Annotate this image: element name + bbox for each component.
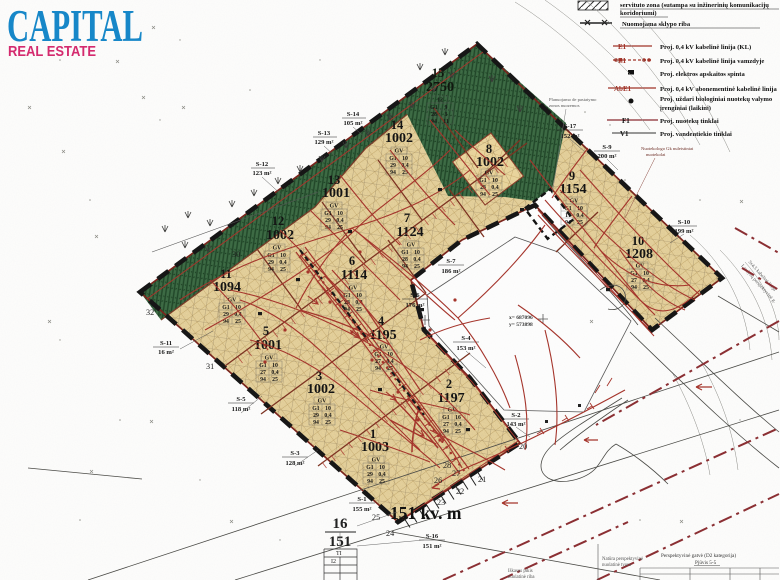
- svg-text:29: 29: [325, 218, 331, 224]
- svg-text:25: 25: [325, 420, 331, 426]
- svg-text:15: 15: [432, 66, 445, 80]
- svg-text:16: 16: [333, 516, 349, 532]
- svg-text:nuolatinė riba: nuolatinė riba: [508, 575, 535, 580]
- svg-text:1001: 1001: [322, 186, 350, 201]
- svg-text:10: 10: [337, 211, 343, 217]
- svg-text:S-4: S-4: [461, 335, 471, 342]
- svg-text:22: 22: [456, 487, 464, 496]
- svg-text:0,4: 0,4: [324, 413, 331, 419]
- svg-text:1154: 1154: [559, 182, 586, 197]
- svg-text:27: 27: [443, 422, 449, 428]
- svg-text:S-14: S-14: [347, 111, 360, 118]
- svg-text:5: 5: [263, 324, 269, 338]
- svg-text:27: 27: [452, 469, 460, 478]
- svg-text:16: 16: [455, 415, 461, 421]
- svg-text:10: 10: [492, 178, 498, 184]
- svg-text:S-10: S-10: [678, 219, 691, 226]
- svg-text:25: 25: [272, 377, 278, 383]
- svg-text:27: 27: [375, 359, 381, 365]
- svg-text:151 kv. m: 151 kv. m: [390, 503, 462, 523]
- svg-text:27: 27: [631, 278, 637, 284]
- svg-text:Natūra perspektyvinė: Natūra perspektyvinė: [602, 557, 643, 562]
- svg-text:176 m²: 176 m²: [405, 302, 424, 309]
- svg-text:S-2: S-2: [511, 412, 521, 419]
- svg-text:G1: G1: [324, 211, 332, 217]
- svg-text:31: 31: [206, 362, 214, 371]
- svg-text:10: 10: [272, 363, 278, 369]
- svg-text:0,4: 0,4: [491, 185, 498, 191]
- svg-text:Proj. vandentiekio tinklai: Proj. vandentiekio tinklai: [660, 131, 732, 138]
- svg-text:0,4: 0,4: [413, 257, 420, 263]
- svg-text:GV: GV: [265, 356, 275, 362]
- svg-text:8: 8: [486, 142, 492, 156]
- svg-text:Proj. 0,4 kV abonementinė kabe: Proj. 0,4 kV abonementinė kabelinė linij…: [660, 86, 778, 93]
- svg-text:143 m²: 143 m²: [506, 421, 525, 428]
- svg-text:7: 7: [404, 211, 410, 225]
- svg-text:20: 20: [519, 442, 527, 451]
- svg-text:94: 94: [260, 377, 266, 383]
- svg-text:nuotekolai: nuotekolai: [646, 152, 666, 157]
- svg-text:GV: GV: [395, 149, 405, 155]
- svg-text:17: 17: [565, 213, 571, 219]
- svg-text:zonos nuozemos: zonos nuozemos: [549, 103, 580, 108]
- svg-text:0,4: 0,4: [271, 370, 278, 376]
- svg-text:Pjūvis 5-5: Pjūvis 5-5: [695, 560, 717, 566]
- svg-text:11: 11: [443, 119, 449, 125]
- svg-text:2750: 2750: [426, 80, 454, 95]
- svg-text:V1: V1: [620, 130, 629, 138]
- svg-text:94: 94: [268, 267, 274, 273]
- svg-text:94: 94: [367, 479, 373, 485]
- svg-text:Perspektyvinė gatvė (D2 katego: Perspektyvinė gatvė (D2 kategorija): [661, 552, 736, 559]
- svg-text:GV: GV: [407, 243, 417, 249]
- svg-text:1002: 1002: [385, 131, 413, 146]
- svg-text:94: 94: [375, 366, 381, 372]
- svg-text:10: 10: [643, 271, 649, 277]
- svg-text:29: 29: [367, 472, 373, 478]
- svg-text:199 m²: 199 m²: [674, 228, 693, 235]
- svg-text:25: 25: [643, 285, 649, 291]
- svg-text:Proj. uždari biologiniai nuote: Proj. uždari biologiniai nuotekų valymo: [660, 96, 773, 103]
- svg-text:0,4: 0,4: [279, 260, 286, 266]
- svg-text:152 m²: 152 m²: [560, 133, 579, 140]
- svg-text:25: 25: [455, 429, 461, 435]
- svg-text:9: 9: [569, 169, 575, 183]
- svg-text:28: 28: [402, 257, 408, 263]
- svg-text:3: 3: [445, 112, 448, 118]
- svg-text:29: 29: [313, 413, 319, 419]
- svg-text:27: 27: [260, 370, 266, 376]
- svg-text:6: 6: [349, 254, 355, 268]
- svg-text:94: 94: [480, 192, 486, 198]
- svg-text:25: 25: [379, 479, 385, 485]
- svg-text:G1: G1: [366, 465, 374, 471]
- svg-text:10: 10: [577, 206, 583, 212]
- svg-text:nuolatinė tvora: nuolatinė tvora: [602, 563, 632, 568]
- svg-text:TI: TI: [336, 551, 342, 557]
- svg-text:14: 14: [391, 118, 404, 132]
- svg-text:0,4: 0,4: [336, 218, 343, 224]
- svg-text:10: 10: [280, 253, 286, 259]
- svg-text:S-7: S-7: [446, 258, 456, 265]
- svg-text:Iškasos pikis: Iškasos pikis: [508, 569, 533, 574]
- svg-text:29: 29: [390, 163, 396, 169]
- svg-text:29: 29: [268, 260, 274, 266]
- svg-text:Planuojamo de pastatymo: Planuojamo de pastatymo: [549, 97, 597, 102]
- svg-text:155 m²: 155 m²: [352, 506, 371, 513]
- svg-text:28: 28: [431, 112, 437, 118]
- svg-text:186 m²: 186 m²: [441, 268, 460, 275]
- svg-text:1002: 1002: [307, 382, 335, 397]
- svg-text:1114: 1114: [341, 268, 367, 283]
- svg-text:S-9: S-9: [602, 144, 612, 151]
- svg-text:94: 94: [313, 420, 319, 426]
- svg-text:S-6: S-6: [410, 292, 420, 299]
- svg-text:153 m²: 153 m²: [456, 345, 475, 352]
- svg-text:25: 25: [372, 513, 380, 522]
- svg-text:S-13: S-13: [318, 130, 331, 137]
- svg-text:S-5: S-5: [236, 396, 246, 403]
- svg-text:105 m²: 105 m²: [343, 120, 362, 127]
- svg-text:S-12: S-12: [256, 161, 269, 168]
- svg-text:GV: GV: [330, 204, 340, 210]
- svg-text:10: 10: [414, 250, 420, 256]
- svg-text:S-17: S-17: [564, 123, 577, 130]
- svg-text:Proj. 0,4 kV kabelinė linija (: Proj. 0,4 kV kabelinė linija (KL): [660, 44, 751, 51]
- svg-text:21: 21: [478, 475, 486, 484]
- svg-text:GV: GV: [318, 399, 328, 405]
- svg-text:151 m²: 151 m²: [422, 543, 441, 550]
- svg-text:13: 13: [328, 173, 341, 187]
- svg-text:REAL ESTATE: REAL ESTATE: [8, 43, 96, 60]
- svg-text:E1: E1: [618, 43, 627, 51]
- svg-text:S-11: S-11: [160, 340, 172, 347]
- svg-text:123 m²: 123 m²: [252, 170, 271, 177]
- svg-text:1: 1: [370, 427, 376, 441]
- svg-text:2: 2: [446, 377, 452, 391]
- svg-text:24: 24: [386, 529, 394, 538]
- svg-text:Nuomojama sklypo riba: Nuomojama sklypo riba: [622, 21, 691, 28]
- svg-text:200 m²: 200 m²: [597, 153, 616, 160]
- svg-text:GV: GV: [380, 345, 390, 351]
- svg-text:30: 30: [232, 250, 240, 259]
- svg-text:G1: G1: [442, 415, 450, 421]
- svg-text:I2: I2: [331, 559, 336, 565]
- svg-text:G1: G1: [401, 250, 409, 256]
- svg-text:G1: G1: [222, 305, 230, 311]
- svg-text:26: 26: [434, 476, 442, 485]
- svg-text:16 m²: 16 m²: [158, 349, 174, 356]
- svg-text:G1: G1: [430, 105, 438, 111]
- svg-text:12: 12: [272, 214, 285, 228]
- svg-text:10: 10: [379, 465, 385, 471]
- svg-text:118 m²: 118 m²: [232, 406, 251, 413]
- svg-text:25: 25: [235, 319, 241, 325]
- svg-text:S-16: S-16: [426, 533, 439, 540]
- svg-text:9: 9: [445, 105, 448, 111]
- svg-text:10: 10: [325, 406, 331, 412]
- svg-text:E1: E1: [618, 57, 627, 65]
- svg-text:10: 10: [632, 234, 645, 248]
- svg-text:servituto zona (sutampa su inž: servituto zona (sutampa su inžinerinių k…: [620, 2, 769, 9]
- svg-text:S-1: S-1: [357, 496, 366, 503]
- svg-text:94: 94: [390, 170, 396, 176]
- svg-text:G1: G1: [312, 406, 320, 412]
- svg-text:12: 12: [437, 98, 443, 104]
- svg-text:1208: 1208: [625, 247, 653, 262]
- svg-text:įrenginiai (laikini): įrenginiai (laikini): [660, 105, 711, 112]
- svg-text:28: 28: [443, 461, 451, 470]
- svg-text:0,4: 0,4: [454, 422, 461, 428]
- svg-text:GV: GV: [273, 246, 283, 252]
- svg-text:GV: GV: [372, 458, 382, 464]
- svg-text:129 m²: 129 m²: [314, 139, 333, 146]
- svg-text:koridoriumi): koridoriumi): [620, 10, 657, 17]
- svg-text:10: 10: [402, 156, 408, 162]
- svg-text:94: 94: [443, 429, 449, 435]
- svg-text:25: 25: [492, 192, 498, 198]
- svg-text:32: 32: [146, 308, 154, 317]
- svg-text:F1: F1: [622, 117, 630, 125]
- svg-text:Proj. elektros apskaitos spint: Proj. elektros apskaitos spinta: [660, 71, 745, 78]
- svg-text:25: 25: [280, 267, 286, 273]
- svg-text:0,4: 0,4: [576, 213, 583, 219]
- svg-text:25: 25: [414, 264, 420, 270]
- svg-text:G1: G1: [259, 363, 267, 369]
- svg-text:Nuotekologo Gk nuleistiniai: Nuotekologo Gk nuleistiniai: [641, 146, 694, 151]
- svg-text:S-3: S-3: [290, 450, 300, 457]
- svg-text:0,4: 0,4: [378, 472, 385, 478]
- svg-text:25: 25: [337, 225, 343, 231]
